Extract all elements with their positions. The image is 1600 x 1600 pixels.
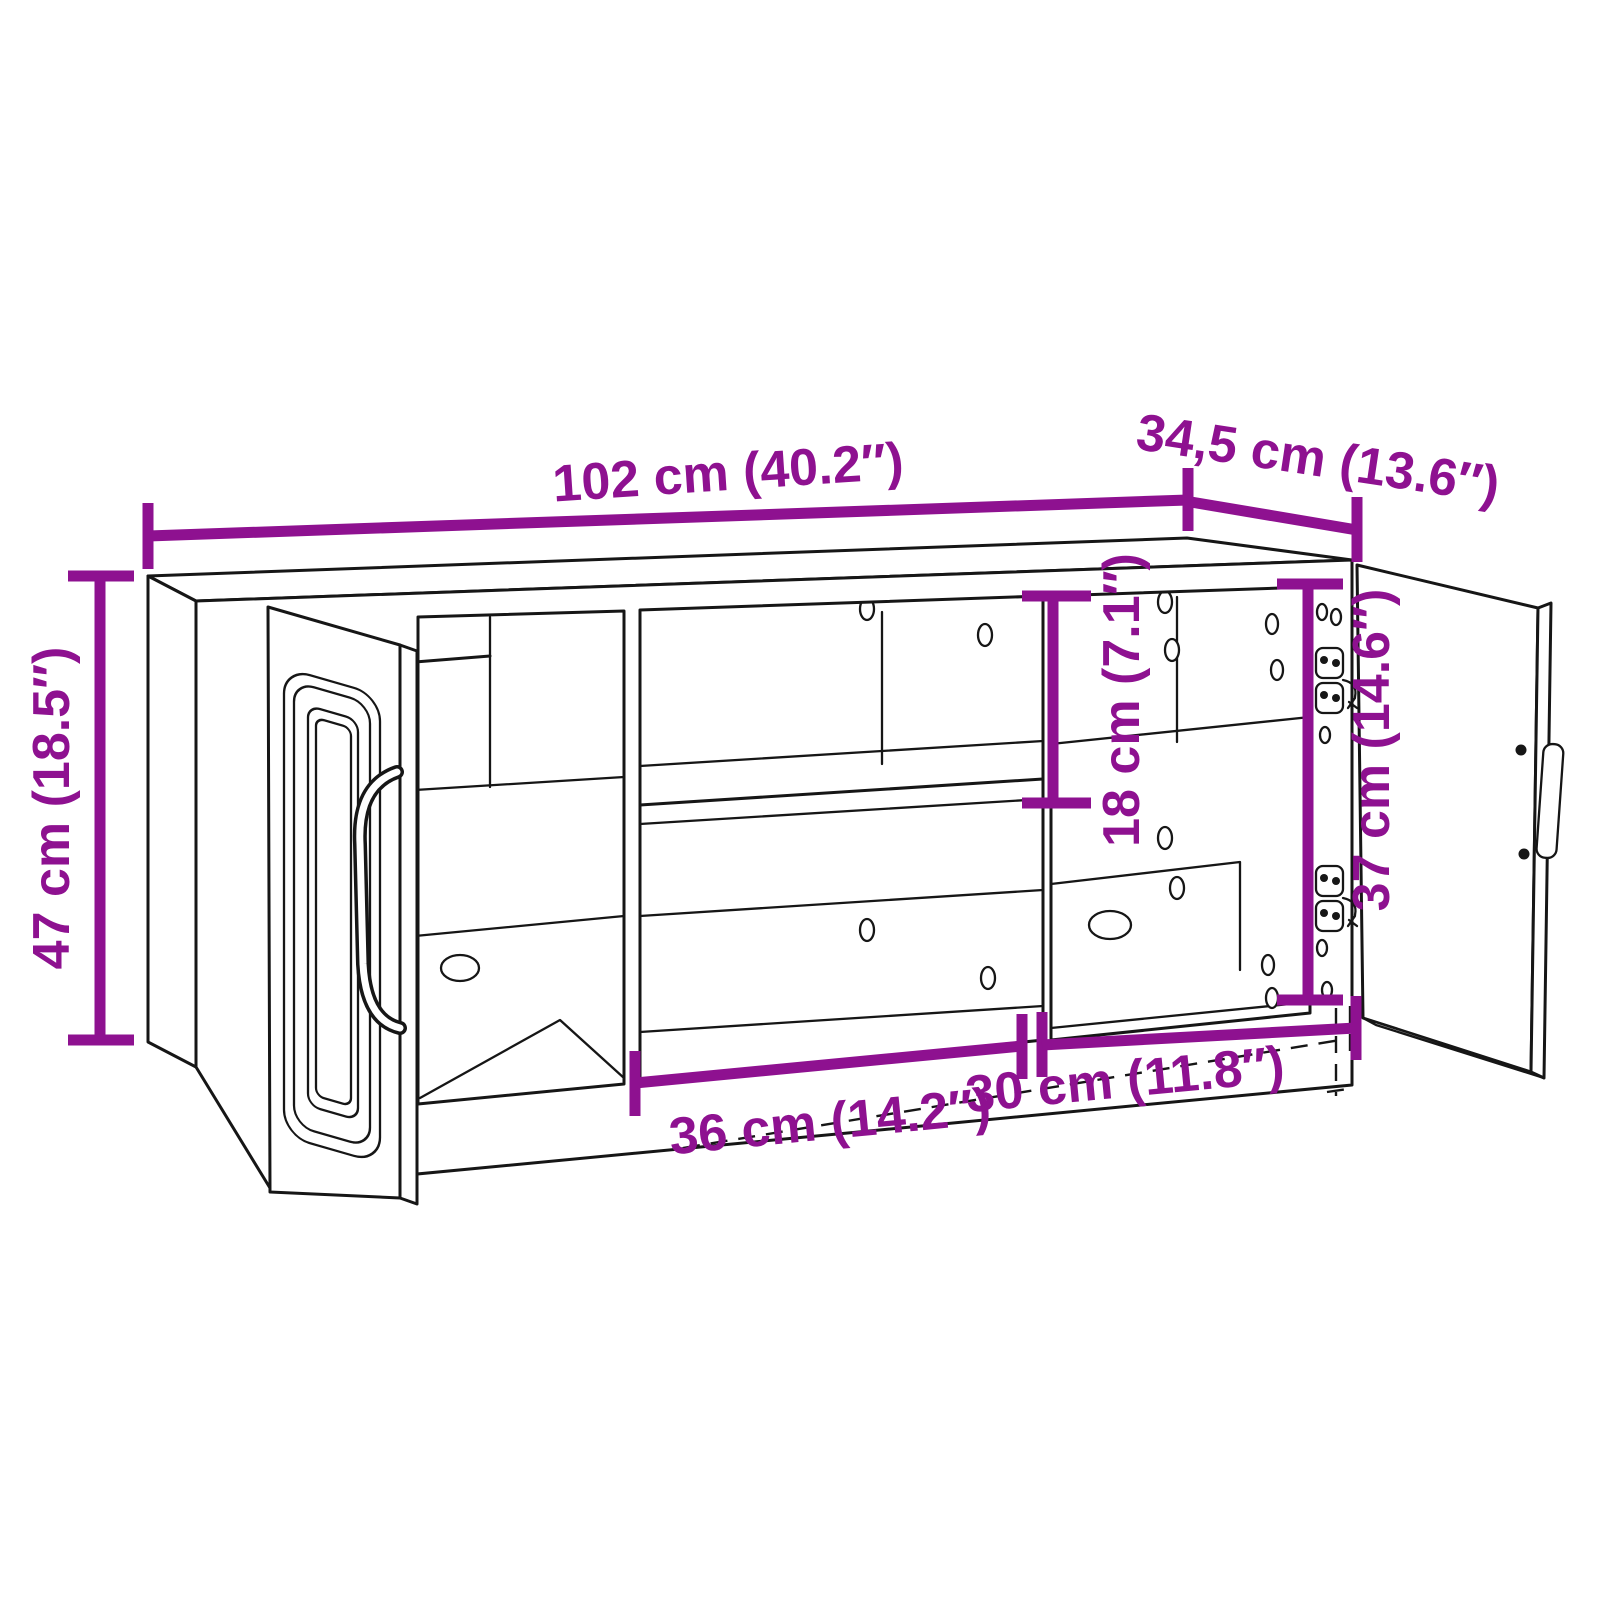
- cabinet-dimension-diagram: 102 cm (40.2″) 34,5 cm (13.6″) 47 cm (18…: [0, 0, 1600, 1600]
- dimension-height-label: 47 cm (18.5″): [23, 647, 81, 970]
- dimension-door-opening-label: 37 cm (14.6″): [1343, 589, 1401, 912]
- dimension-width-label: 102 cm (40.2″): [551, 432, 906, 513]
- cabinet-interior: [415, 591, 1310, 1098]
- dimension-upper-opening-label: 18 cm (7.1″): [1093, 553, 1151, 847]
- dimension-upper-opening-height: 18 cm (7.1″): [1022, 553, 1151, 847]
- cabinet-left-panel: [148, 576, 196, 1067]
- left-door-edge: [400, 645, 417, 1204]
- dimension-height: 47 cm (18.5″): [23, 576, 134, 1040]
- page: 102 cm (40.2″) 34,5 cm (13.6″) 47 cm (18…: [0, 0, 1600, 1600]
- left-door: [268, 607, 417, 1204]
